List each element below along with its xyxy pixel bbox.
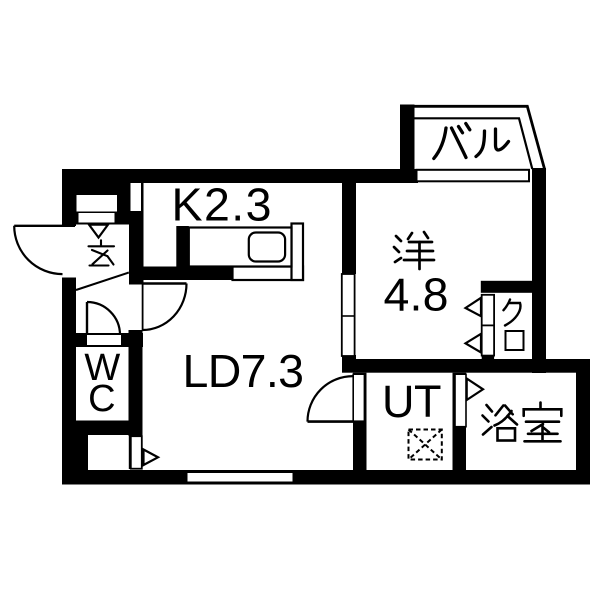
svg-text:4.8: 4.8 [384,269,449,321]
svg-text:K2.3: K2.3 [172,179,272,231]
svg-text:UT: UT [382,376,442,427]
svg-text:C: C [88,378,115,420]
svg-text:LD7.3: LD7.3 [183,345,305,397]
